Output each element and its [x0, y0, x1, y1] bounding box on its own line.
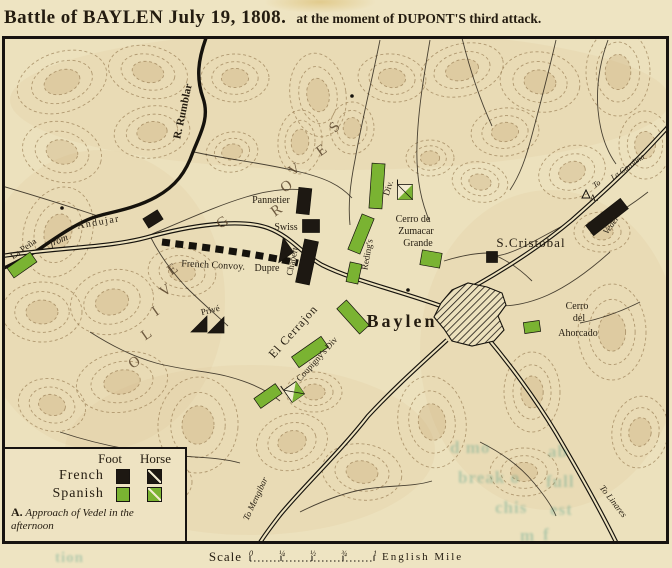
label-baylen: Baylen [366, 311, 437, 331]
hill-contour [221, 68, 248, 87]
spanish-foot-symbol [116, 487, 131, 502]
scale-tick-label: ½ [310, 549, 316, 558]
scale-bar: Scale 0¼½¾1 English Mile [0, 546, 672, 568]
hill-contour [343, 118, 361, 139]
hill-contour [605, 54, 631, 89]
legend-note-marker: A. [11, 505, 23, 519]
hill-contour [303, 384, 325, 400]
pannetier-unit [296, 187, 312, 214]
scale-tick-label: ¾ [341, 549, 347, 558]
swiss-unit [303, 220, 320, 233]
label-swiss: Swiss [274, 222, 297, 233]
hill-contour [598, 313, 625, 351]
scale-label: Scale [209, 549, 242, 565]
terrain-tint [10, 30, 670, 170]
legend-col-foot: Foot [98, 451, 122, 467]
legend-row-french: French [11, 467, 179, 485]
zumacar-unit [420, 250, 442, 268]
building-dot [60, 206, 64, 210]
label-dupre: Dupre [255, 263, 281, 274]
map-legend: Foot Horse FrenchSpanish A. Approach of … [5, 447, 187, 541]
scale-ruler: 0¼½¾1 [246, 548, 378, 566]
scale-tick-label: 0 [249, 549, 253, 558]
label-s-cristobal: S.Cristobal [496, 235, 565, 250]
label-zumacar: Zumacar [398, 226, 434, 237]
legend-row-spanish: Spanish [11, 485, 179, 503]
scale-tick-label: 1 [373, 549, 377, 558]
s-cristobal-building [487, 252, 498, 263]
scale-tick-label: ¼ [279, 549, 285, 558]
spanish-horse-symbol [147, 487, 162, 502]
french-foot-symbol [116, 469, 131, 484]
label-del: del [573, 313, 585, 324]
page-subtitle: at the moment of DUPONT'S third attack. [296, 11, 541, 27]
building-dot [406, 288, 410, 292]
building-dot [350, 94, 354, 98]
legend-row-label: French [11, 468, 116, 484]
scale-unit-label: English Mile [382, 551, 463, 563]
legend-note: A. Approach of Vedel in the afternoon [11, 506, 179, 533]
title-bar: Battle of BAYLEN July 19, 1808. at the m… [0, 0, 672, 36]
legend-header: Foot Horse [11, 451, 179, 467]
french-horse-symbol [147, 469, 162, 484]
hill-contour [26, 300, 58, 324]
ahorcado-unit [523, 320, 540, 333]
legend-row-label: Spanish [11, 486, 116, 502]
page-title: Battle of BAYLEN July 19, 1808. [4, 7, 286, 29]
hill-contour [420, 151, 439, 165]
label-marker-a: A. [590, 193, 599, 203]
map-page: Battle of BAYLEN July 19, 1808. at the m… [0, 0, 672, 568]
legend-note-line1: Approach of Vedel in the [25, 507, 133, 519]
legend-note-line2: afternoon [11, 520, 54, 532]
label-cerro-de: Cerro de [396, 214, 431, 225]
legend-rows: FrenchSpanish [11, 467, 179, 503]
label-ahorcado: Ahorcado [558, 328, 597, 339]
label-grande: Grande [403, 238, 433, 249]
label-cerro: Cerro [566, 301, 589, 312]
legend-col-horse: Horse [140, 451, 171, 467]
hill-contour [521, 376, 543, 408]
